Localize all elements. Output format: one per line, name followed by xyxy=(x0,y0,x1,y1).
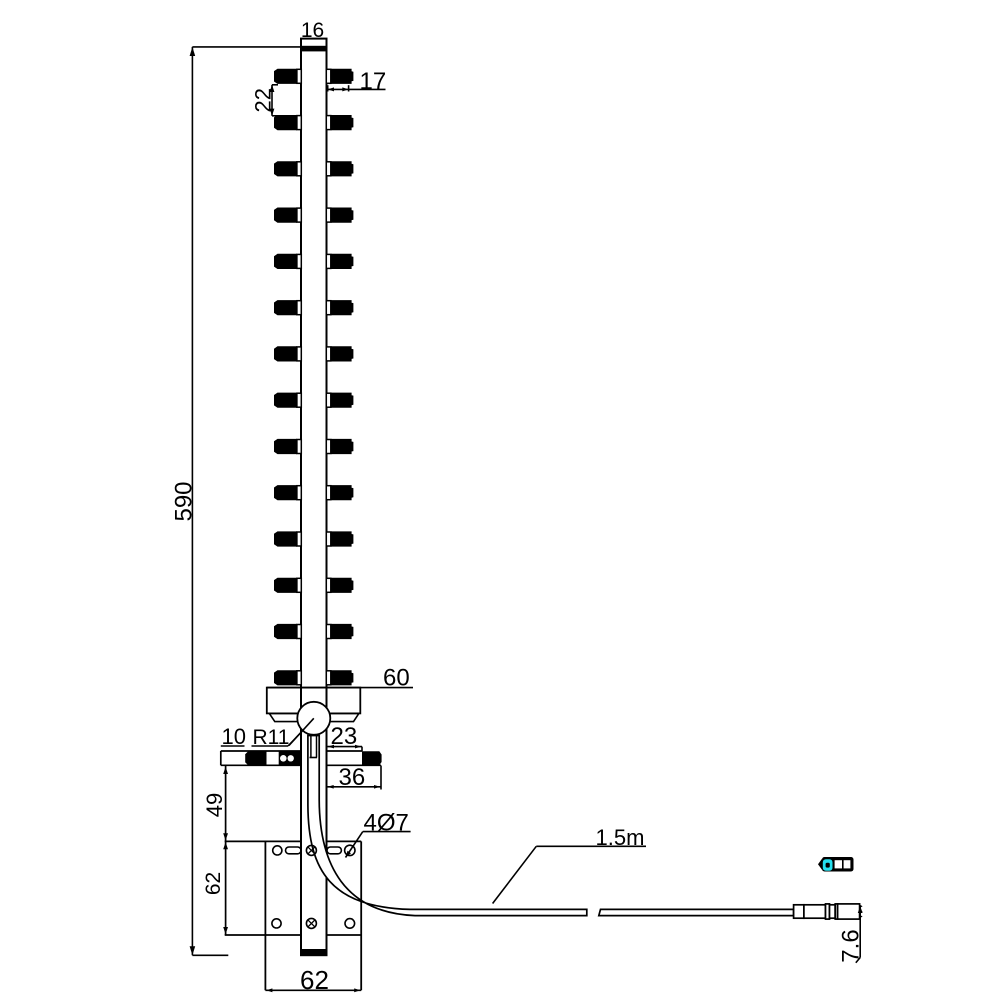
svg-text:62: 62 xyxy=(202,872,225,895)
svg-text:49: 49 xyxy=(202,793,227,817)
svg-text:4Ø7: 4Ø7 xyxy=(364,810,409,837)
svg-text:22: 22 xyxy=(250,88,275,112)
svg-text:60: 60 xyxy=(383,665,410,692)
svg-text:16: 16 xyxy=(301,19,324,42)
svg-text:23: 23 xyxy=(331,723,358,750)
svg-text:17: 17 xyxy=(360,68,387,95)
svg-text:1.5m: 1.5m xyxy=(596,825,645,850)
svg-text:62: 62 xyxy=(300,965,329,995)
svg-text:590: 590 xyxy=(171,481,198,521)
svg-text:7.6: 7.6 xyxy=(837,929,864,962)
svg-text:10: 10 xyxy=(222,724,246,749)
svg-text:36: 36 xyxy=(339,764,366,791)
svg-text:R11: R11 xyxy=(253,726,290,749)
